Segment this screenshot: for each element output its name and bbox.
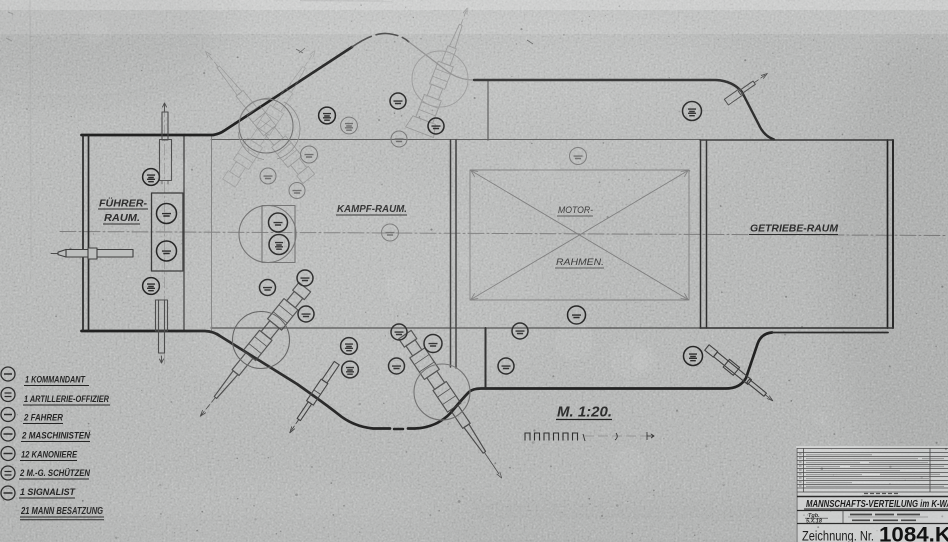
svg-text:FÜHRER-: FÜHRER- <box>99 197 148 210</box>
svg-text:1 KOMMANDANT: 1 KOMMANDANT <box>25 375 86 386</box>
svg-text:1 SIGNALIST: 1 SIGNALIST <box>20 487 76 498</box>
svg-text:GETRIEBE-RAUM: GETRIEBE-RAUM <box>750 223 838 235</box>
svg-text:RAUM.: RAUM. <box>104 212 140 224</box>
svg-text:1 ARTILLERIE-OFFIZIER: 1 ARTILLERIE-OFFIZIER <box>24 394 109 405</box>
svg-text:2 M.-G. SCHÜTZEN: 2 M.-G. SCHÜTZEN <box>19 468 91 479</box>
svg-text:RAHMEN.: RAHMEN. <box>556 257 604 268</box>
svg-text:2 MASCHINISTEN: 2 MASCHINISTEN <box>21 431 91 442</box>
svg-text:12 KANONIERE: 12 KANONIERE <box>21 450 77 461</box>
svg-text:MANNSCHAFTS-VERTEILUNG im K-WA: MANNSCHAFTS-VERTEILUNG im K-WAG <box>806 499 948 510</box>
svg-text:2 FAHRER: 2 FAHRER <box>23 413 63 424</box>
svg-text:M. 1:20.: M. 1:20. <box>557 404 612 421</box>
